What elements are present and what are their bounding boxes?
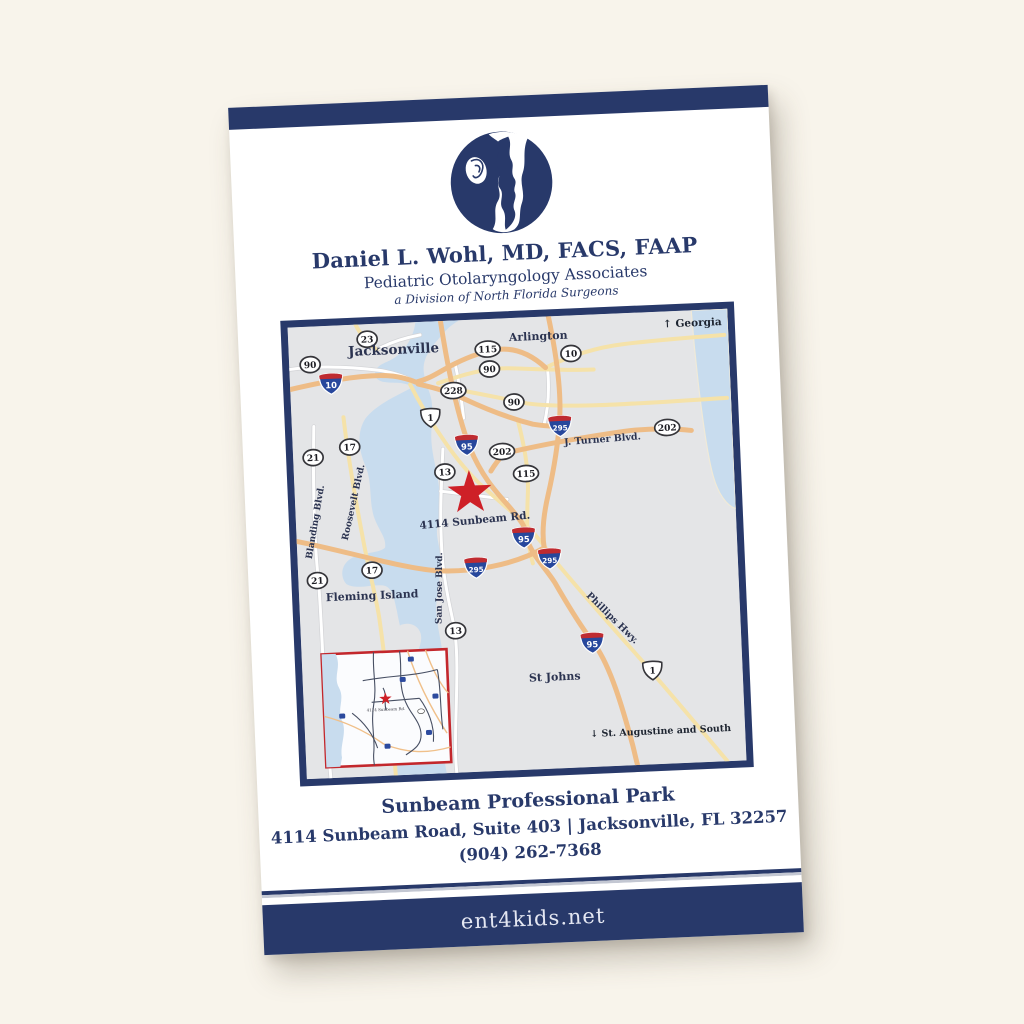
- svg-text:95: 95: [518, 534, 530, 544]
- route-shield-10: 10: [561, 345, 582, 362]
- route-shield-21: 21: [303, 449, 324, 466]
- practice-logo: [445, 126, 558, 239]
- svg-text:1: 1: [427, 414, 434, 424]
- svg-text:90: 90: [483, 365, 496, 376]
- route-shield-202: 202: [654, 419, 680, 436]
- svg-text:21: 21: [307, 454, 320, 465]
- route-shield-17: 17: [362, 562, 383, 579]
- svg-text:10: 10: [325, 380, 337, 390]
- svg-text:202: 202: [658, 423, 677, 434]
- route-shield-115: 115: [513, 465, 539, 482]
- city-label-st-johns: St Johns: [529, 669, 581, 684]
- road-label-san-jose-blvd-: San Jose Blvd.: [435, 552, 446, 624]
- route-shield-21: 21: [307, 572, 328, 589]
- svg-text:228: 228: [444, 386, 463, 397]
- svg-text:10: 10: [565, 350, 578, 361]
- footer: ent4kids.net: [262, 868, 804, 955]
- map-frame: 4114 Sunbeam Rd. 4114 Sunbeam Rd.2390115…: [280, 301, 754, 786]
- svg-text:90: 90: [508, 398, 521, 409]
- route-shield-13: 13: [445, 622, 466, 639]
- svg-text:17: 17: [366, 566, 379, 577]
- svg-text:295: 295: [468, 565, 483, 575]
- svg-text:13: 13: [438, 468, 451, 479]
- flyer-page: Daniel L. Wohl, MD, FACS, FAAP Pediatric…: [228, 85, 804, 955]
- svg-text:115: 115: [516, 469, 535, 480]
- photo-background: Daniel L. Wohl, MD, FACS, FAAP Pediatric…: [0, 0, 1024, 1024]
- route-shield-115: 115: [475, 341, 501, 358]
- svg-text:95: 95: [586, 639, 598, 649]
- route-shield-17: 17: [339, 439, 360, 456]
- route-shield-202: 202: [489, 443, 515, 460]
- route-shield-90: 90: [479, 361, 500, 378]
- jacksonville-area-map: 4114 Sunbeam Rd. 4114 Sunbeam Rd.2390115…: [288, 309, 747, 779]
- svg-text:95: 95: [461, 441, 473, 451]
- svg-text:115: 115: [478, 345, 497, 356]
- route-shield-90: 90: [300, 356, 321, 373]
- top-accent-band: [228, 85, 768, 130]
- direction-label-georgia: ↑ Georgia: [663, 316, 722, 331]
- svg-text:13: 13: [449, 627, 462, 638]
- svg-text:90: 90: [304, 361, 317, 372]
- svg-text:17: 17: [343, 443, 356, 454]
- route-shield-228: 228: [441, 382, 467, 399]
- website-url: ent4kids.net: [460, 904, 605, 934]
- route-shield-90: 90: [504, 394, 525, 411]
- svg-text:202: 202: [493, 447, 512, 458]
- inset-map: 4114 Sunbeam Rd.: [322, 649, 452, 767]
- faces-logo-icon: [445, 126, 558, 239]
- svg-text:295: 295: [552, 423, 567, 433]
- svg-text:21: 21: [311, 577, 324, 588]
- route-shield-13: 13: [435, 464, 456, 481]
- svg-text:1: 1: [649, 666, 656, 676]
- city-label-arlington: Arlington: [508, 329, 568, 345]
- svg-text:295: 295: [542, 556, 557, 566]
